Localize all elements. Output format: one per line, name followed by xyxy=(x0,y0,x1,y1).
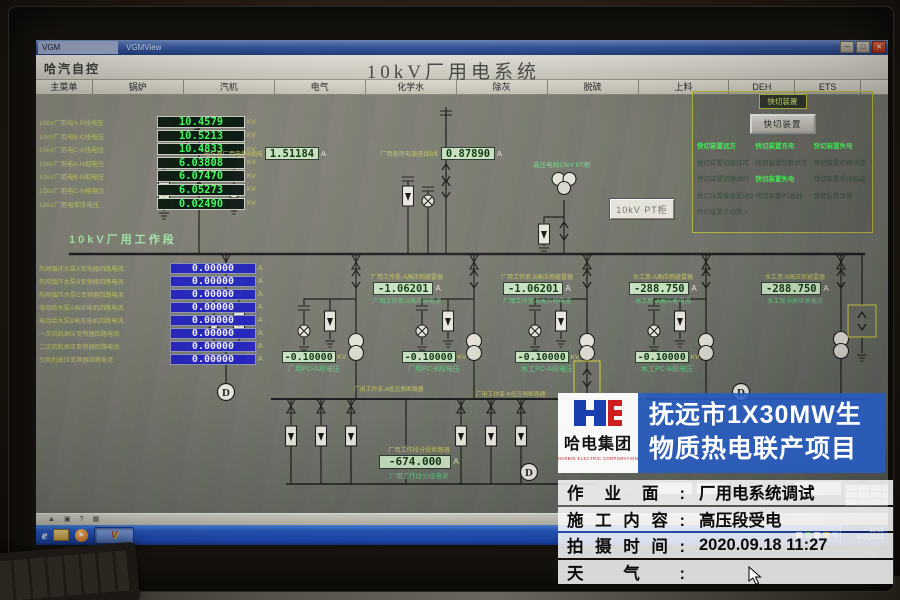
app-header: 哈汽自控 10kV厂用电系统 xyxy=(36,55,888,80)
fs-status: 快切装置切换进行 xyxy=(697,173,753,183)
value-display: 0.00000 xyxy=(170,276,256,287)
standby-source-current-readout: 厂用备用电源进线B相电流 0.87890 A xyxy=(380,147,502,160)
menu-item-main[interactable]: 主菜单 xyxy=(36,80,93,94)
media-player-icon[interactable]: ▶ xyxy=(75,529,88,542)
info-row: 拍摄时间:2020.09.18 11:27 xyxy=(558,533,893,558)
value-display: 0.00000 xyxy=(170,354,256,365)
metering-row: 热网循环水泵B变频器回路电流0.00000A xyxy=(39,276,263,287)
water-pc-a-voltage: -0.10000KV 水工PC-A段电压 xyxy=(495,351,599,374)
menu-item-desulf[interactable]: 脱硫 xyxy=(548,80,639,94)
value-display: -0.10000 xyxy=(635,351,689,363)
reactor-current-readout: 电抗器厂用电侧B相电流 1.51184 A xyxy=(204,147,326,160)
fs-status: 快切装置切换异常 xyxy=(755,157,811,167)
value-display: 0.00000 xyxy=(170,341,256,352)
vgmview-icon: V xyxy=(111,530,118,541)
metering-row: 热网循环水泵A变频器回路电流0.00000A xyxy=(39,263,263,274)
signal-icon: ▦ xyxy=(92,515,99,525)
value-display: 0.00000 xyxy=(170,328,256,339)
fs-status: 快切装置充电 xyxy=(755,140,811,150)
maximize-button[interactable]: □ xyxy=(856,41,870,53)
company-name: 哈电集团 xyxy=(564,430,632,454)
value-display: -0.10000 xyxy=(402,351,456,363)
fs-status: 快切装置异常 xyxy=(814,190,870,200)
fast-switch-button[interactable]: 快切装置 xyxy=(750,114,816,134)
folder-icon[interactable] xyxy=(53,529,69,541)
window-titlebar: VGM VGMView ─ □ ✕ xyxy=(36,40,888,55)
metering-row: 电动给水泵A高压电机回路电流0.00000A xyxy=(39,302,263,313)
fs-status: 快切装置切换闭锁 xyxy=(814,157,870,167)
chart-icon: ▲ xyxy=(48,515,55,525)
mouse-cursor xyxy=(748,566,762,586)
hv-metering-panel: 10kV厂用电A-B线电压10.4579KV 10kV厂用电B-C线电压10.5… xyxy=(39,116,256,210)
value-display: 0.87890 xyxy=(441,147,495,160)
metering-row: 10kV厂用电A-B线电压10.4579KV xyxy=(39,116,256,128)
value-display: 0.00000 xyxy=(170,289,256,300)
window-document-tab: VGM xyxy=(38,41,118,54)
harbin-electric-logo-box: 哈电集团 HARBIN ELECTRIC CORPORATION xyxy=(558,393,638,473)
fs-status: 快切装置手动启动 xyxy=(814,173,870,183)
metering-row: 热网循环水泵C变频器回路电流0.00000A xyxy=(39,289,263,300)
lv-breaker-label: 厂用工作变-A低压侧断路器 xyxy=(354,384,424,393)
metering-row: 一次风机高压变频器回路电流0.00000A xyxy=(39,328,263,339)
value-display: 6.05273 xyxy=(157,184,245,196)
internet-explorer-icon[interactable]: e xyxy=(42,528,47,543)
pc-b-voltage: -0.10000KV 厂用PC-B段电压 xyxy=(382,351,486,374)
vgmview-taskbar-button[interactable]: V xyxy=(94,527,134,544)
water-pc-b-voltage: -0.10000KV 水工PC-B段电压 xyxy=(615,351,719,374)
value-display: 10.4579 xyxy=(157,116,245,128)
metering-row: 10kV厂用电B-N相电压6.07470KV xyxy=(39,170,256,182)
fs-status: 快切装置手动投入 xyxy=(697,206,753,216)
minimize-button[interactable]: ─ xyxy=(840,41,854,53)
metering-row: 10kV厂用电B-C线电压10.5213KV xyxy=(39,130,256,142)
value-display: 0.00000 xyxy=(170,302,256,313)
fs-status: 快切装置失电 xyxy=(755,173,811,183)
motor-d-symbol xyxy=(521,464,538,481)
harbin-electric-logo xyxy=(574,400,622,427)
close-button[interactable]: ✕ xyxy=(872,41,886,53)
metering-row: 二次风机高压变频器回路电流0.00000A xyxy=(39,341,263,352)
value-display: -674.000 xyxy=(379,455,451,469)
metering-row: 引风机高压变频器回路电流0.00000A xyxy=(39,354,263,365)
value-display: -1.06201 xyxy=(503,282,563,295)
value-display: -288.750 xyxy=(629,282,689,295)
fast-switch-panel: 快切装置 快切装置 快切装置远方 快切装置切换许可 快切装置切换进行 快切装置备… xyxy=(692,91,873,233)
info-row: 施工内容:高压段受电 xyxy=(558,507,893,532)
value-display: -0.10000 xyxy=(515,351,569,363)
value-display: 0.00000 xyxy=(170,263,256,274)
value-display: 6.07470 xyxy=(157,170,245,182)
fs-status: 快切装置切换许可 xyxy=(697,157,753,167)
value-display: -288.750 xyxy=(761,282,821,295)
help-icon: ? xyxy=(80,515,84,525)
menu-item-electrical[interactable]: 电气 xyxy=(275,80,366,94)
monitor-photo: VGM VGMView ─ □ ✕ 哈汽自控 10kV厂用电系统 主菜单 锅炉 … xyxy=(0,0,900,600)
work-bus-label: 10kV厂用工作段 xyxy=(69,231,177,247)
metering-row: 电动给水泵B高压电机回路电流0.00000A xyxy=(39,315,263,326)
brand-label: 哈汽自控 xyxy=(44,60,100,77)
value-display: -1.06201 xyxy=(373,282,433,295)
pc-a-voltage: -0.10000KV 厂用PC-A段电压 xyxy=(262,351,366,374)
info-row: 作业面:厂用电系统调试 xyxy=(558,480,893,505)
water-transformer-b-readout: 水工变-B高压侧避雷器 -288.750A 水工变-B高压侧电流 xyxy=(736,272,854,305)
pt-cabinet-box[interactable]: 10kV PT柜 xyxy=(609,198,675,220)
metering-row: 10kV厂用电零序电压0.02490KV xyxy=(39,197,256,209)
company-name-en: HARBIN ELECTRIC CORPORATION xyxy=(558,456,639,461)
lv-breaker-label: 厂用工作变-B低压侧断路器 xyxy=(476,389,546,398)
transformer-b-readout: 厂用工作变-B高压侧避雷器 -1.06201A 厂用工作变-B高压侧电流 xyxy=(478,272,596,305)
fast-switch-panel-title: 快切装置 xyxy=(759,94,807,109)
menu-item-chemwater[interactable]: 化学水 xyxy=(366,80,457,94)
fs-status: 快切装置备自投闭锁 xyxy=(697,190,753,200)
highlight-breaker-box xyxy=(574,305,876,395)
fs-status: 快切装置PT断线 xyxy=(755,190,811,200)
pt-symbol xyxy=(552,173,576,195)
value-display: -0.10000 xyxy=(282,351,336,363)
value-display: 10.5213 xyxy=(157,130,245,142)
project-title-banner: 抚远市1X30MW生 物质热电联产项目 xyxy=(638,393,885,473)
menu-item-ash[interactable]: 除灰 xyxy=(457,80,548,94)
project-line: 抚远市1X30MW生 xyxy=(649,398,885,432)
fs-status: 快切装置远方 xyxy=(697,140,753,150)
transformer-symbol xyxy=(834,332,849,359)
photo-info-table: 作业面:厂用电系统调试 施工内容:高压段受电 拍摄时间:2020.09.18 1… xyxy=(558,480,893,586)
transformer-a-readout: 厂用工作变-A高压侧避雷器 -1.06201A 厂用工作变-A高压侧电流 xyxy=(348,272,466,305)
menu-item-turbine[interactable]: 汽机 xyxy=(184,80,275,94)
pt-area-label: 高压电网10kV PT柜 xyxy=(533,159,590,169)
project-line: 物质热电联产项目 xyxy=(649,432,885,466)
value-display: 1.51184 xyxy=(265,147,319,160)
window-app-title: VGMView xyxy=(126,41,161,54)
bus-tie-readout: 厂用工作段分段断路器 -674.000A 厂用工作段分段电流 xyxy=(358,445,480,480)
window-icon: ▣ xyxy=(64,515,71,525)
feeder-metering-panel: 热网循环水泵A变频器回路电流0.00000A 热网循环水泵B变频器回路电流0.0… xyxy=(39,263,263,365)
water-transformer-a-readout: 水工变-A高压侧避雷器 -288.750A 水工变-A高压侧电流 xyxy=(604,272,722,305)
fs-status: 快切装置失电 xyxy=(814,140,870,150)
motor-d-symbol xyxy=(218,384,235,401)
menu-item-boiler[interactable]: 锅炉 xyxy=(93,80,184,94)
info-row: 天气: xyxy=(558,560,893,585)
value-display: 0.00000 xyxy=(170,315,256,326)
value-display: 0.02490 xyxy=(157,198,245,210)
metering-row: 10kV厂用电C-N相电压6.05273KV xyxy=(39,184,256,196)
